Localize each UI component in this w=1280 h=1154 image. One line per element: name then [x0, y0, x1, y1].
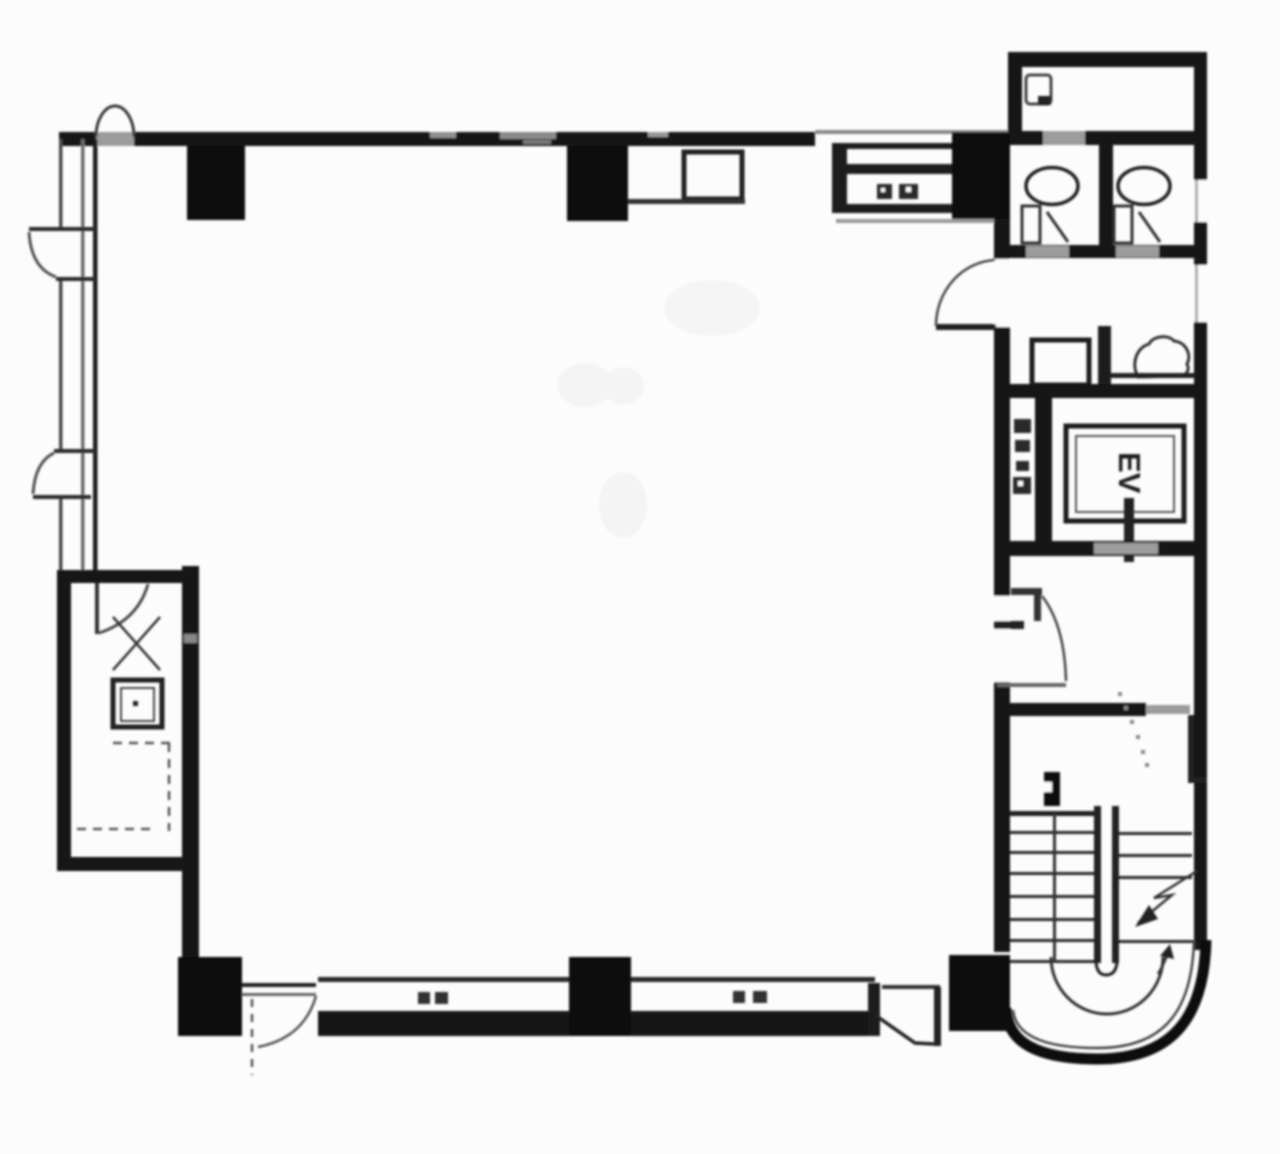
svg-text:EV: EV — [1112, 452, 1147, 494]
